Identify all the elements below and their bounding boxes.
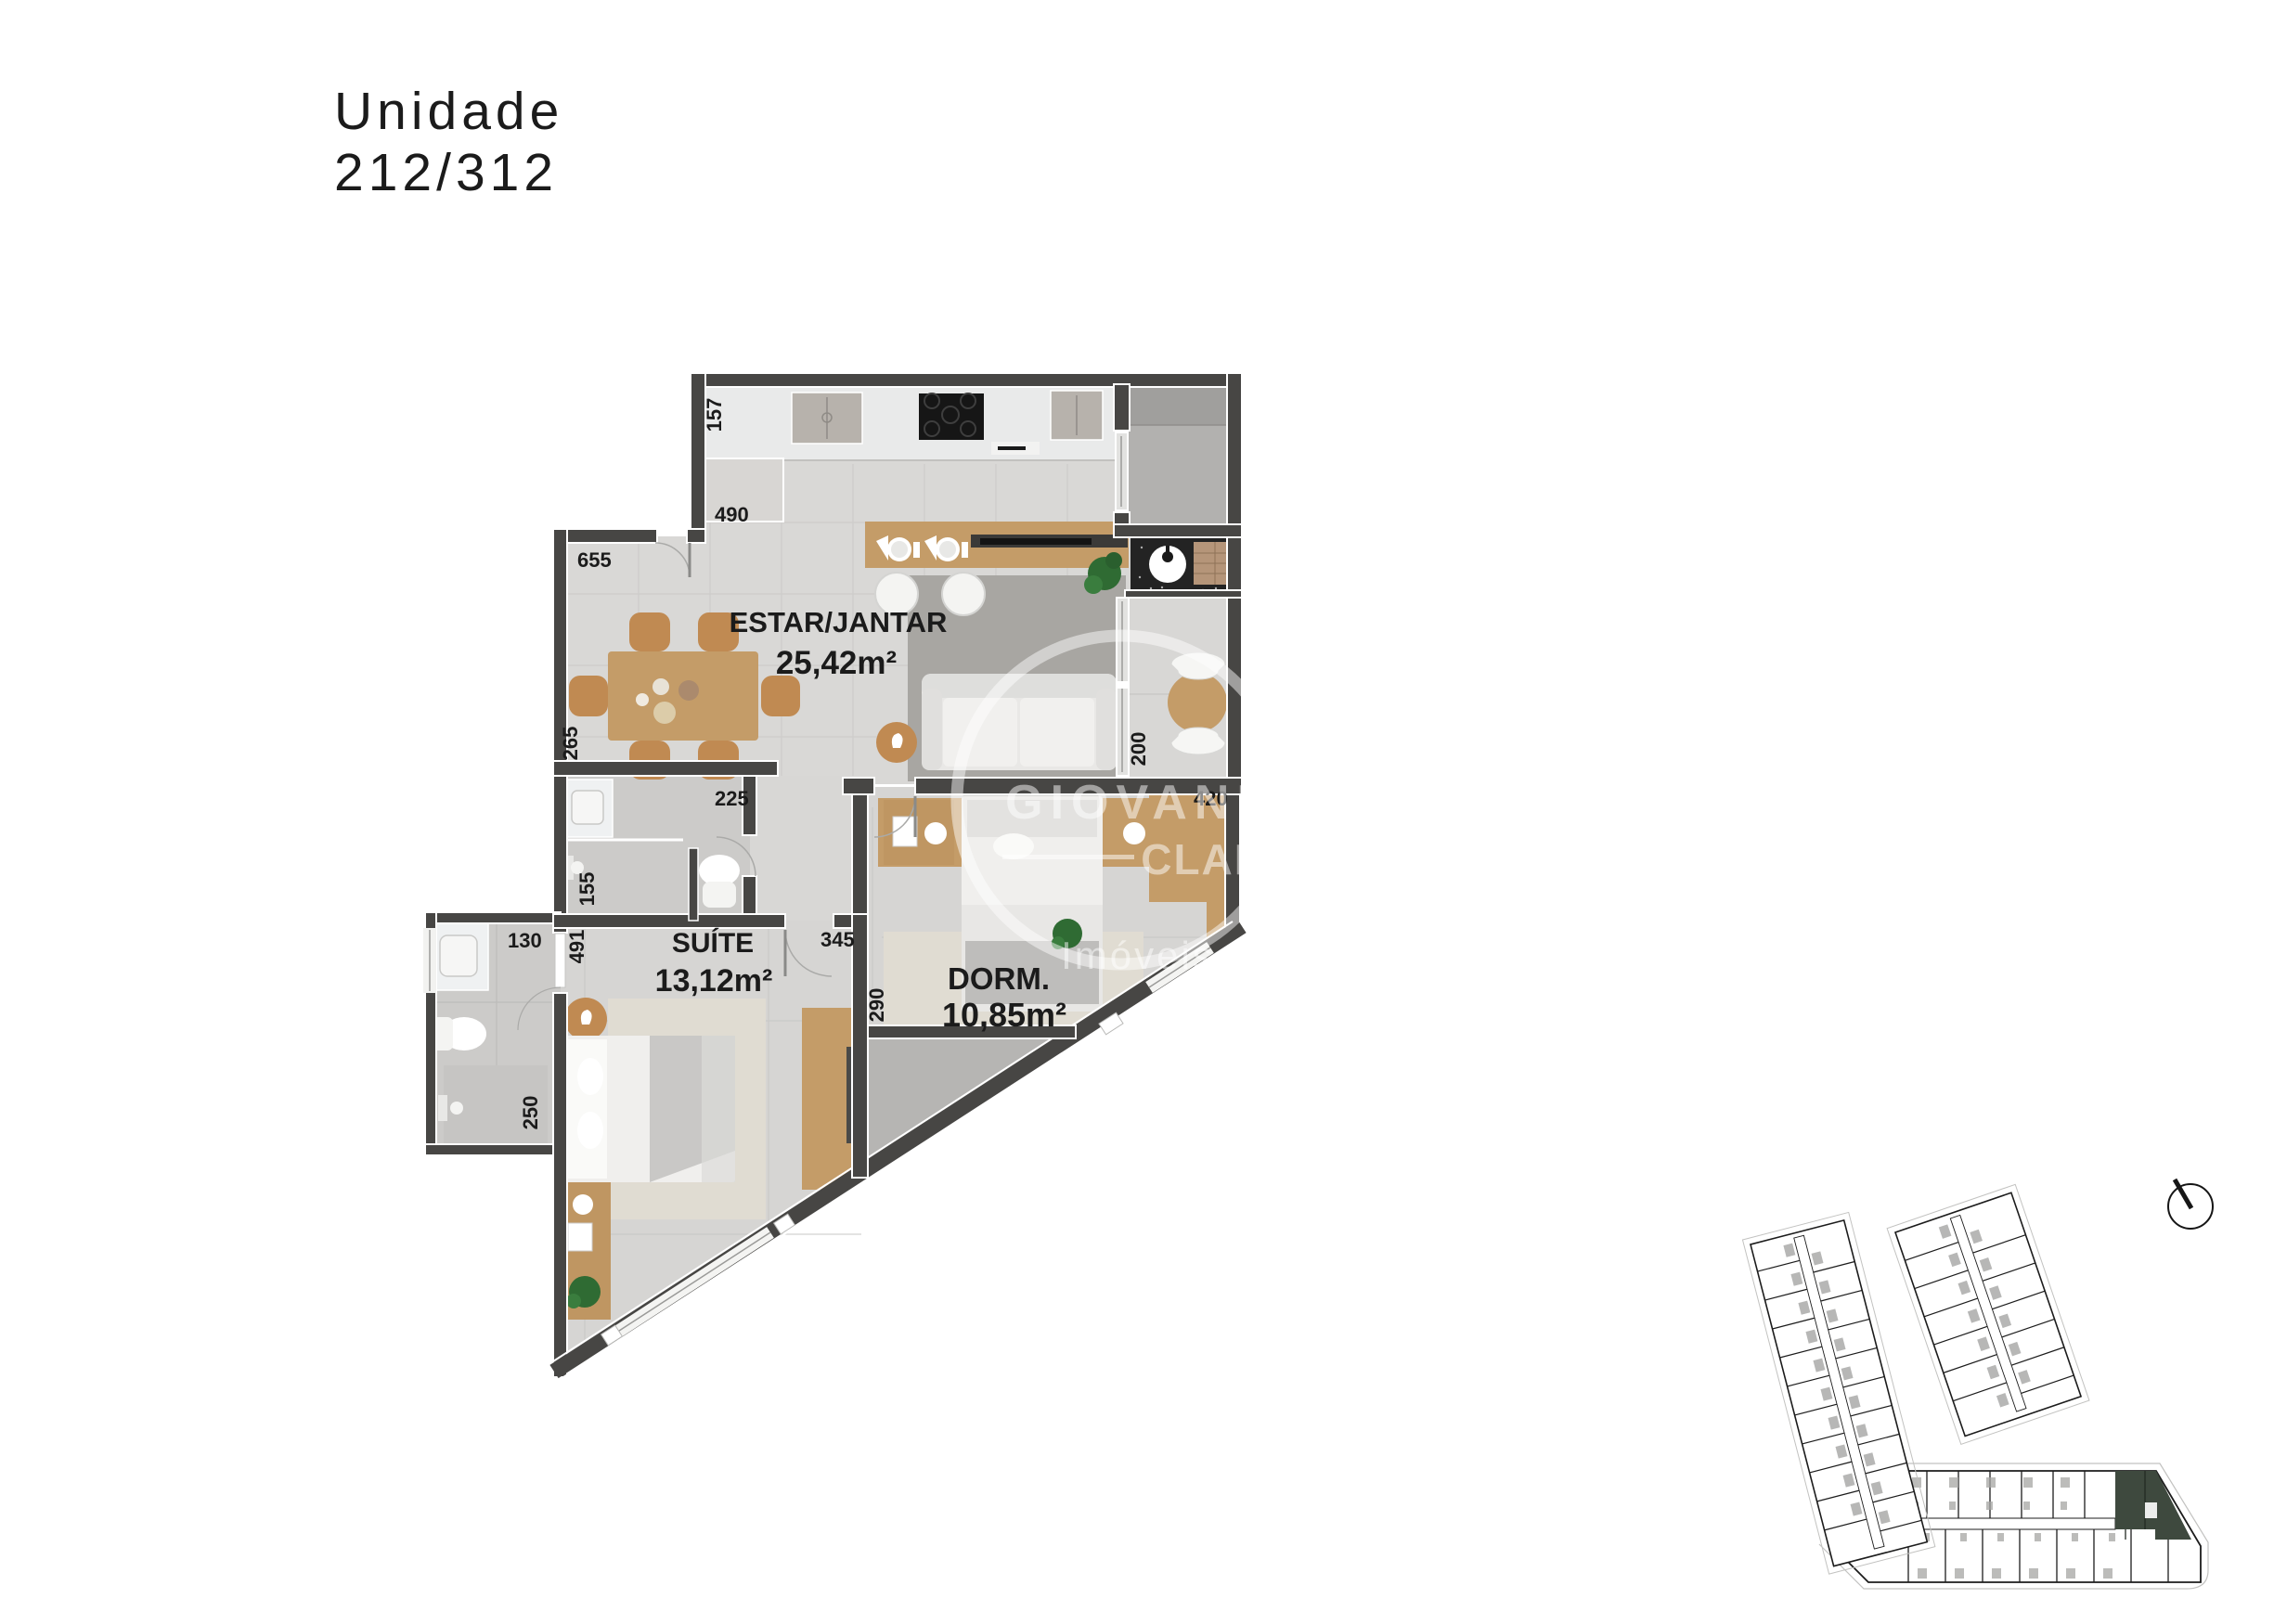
svg-text:250: 250 xyxy=(519,1096,542,1130)
svg-text:SUÍTE: SUÍTE xyxy=(672,927,754,959)
svg-text:ESTAR/JANTAR: ESTAR/JANTAR xyxy=(730,606,948,638)
svg-text:490: 490 xyxy=(715,503,749,526)
svg-text:Imóveis: Imóveis xyxy=(1061,934,1215,977)
svg-text:130: 130 xyxy=(508,929,542,952)
svg-text:10,85m²: 10,85m² xyxy=(942,996,1066,1034)
svg-text:Unidade: Unidade xyxy=(334,82,563,141)
svg-text:200: 200 xyxy=(1127,732,1150,767)
svg-text:25,42m²: 25,42m² xyxy=(776,645,897,681)
svg-text:DORM.: DORM. xyxy=(948,961,1050,996)
svg-text:GIOVANI: GIOVANI xyxy=(1005,776,1258,830)
svg-text:491: 491 xyxy=(565,930,588,964)
svg-text:225: 225 xyxy=(715,787,749,810)
svg-text:265: 265 xyxy=(559,727,582,761)
svg-text:13,12m²: 13,12m² xyxy=(655,963,773,999)
svg-text:655: 655 xyxy=(577,548,612,572)
svg-text:155: 155 xyxy=(575,872,599,907)
svg-text:CLARO: CLARO xyxy=(1141,835,1302,883)
svg-text:345: 345 xyxy=(820,928,855,951)
svg-text:157: 157 xyxy=(703,398,726,432)
svg-text:212/312: 212/312 xyxy=(334,143,558,202)
svg-text:290: 290 xyxy=(865,988,888,1023)
